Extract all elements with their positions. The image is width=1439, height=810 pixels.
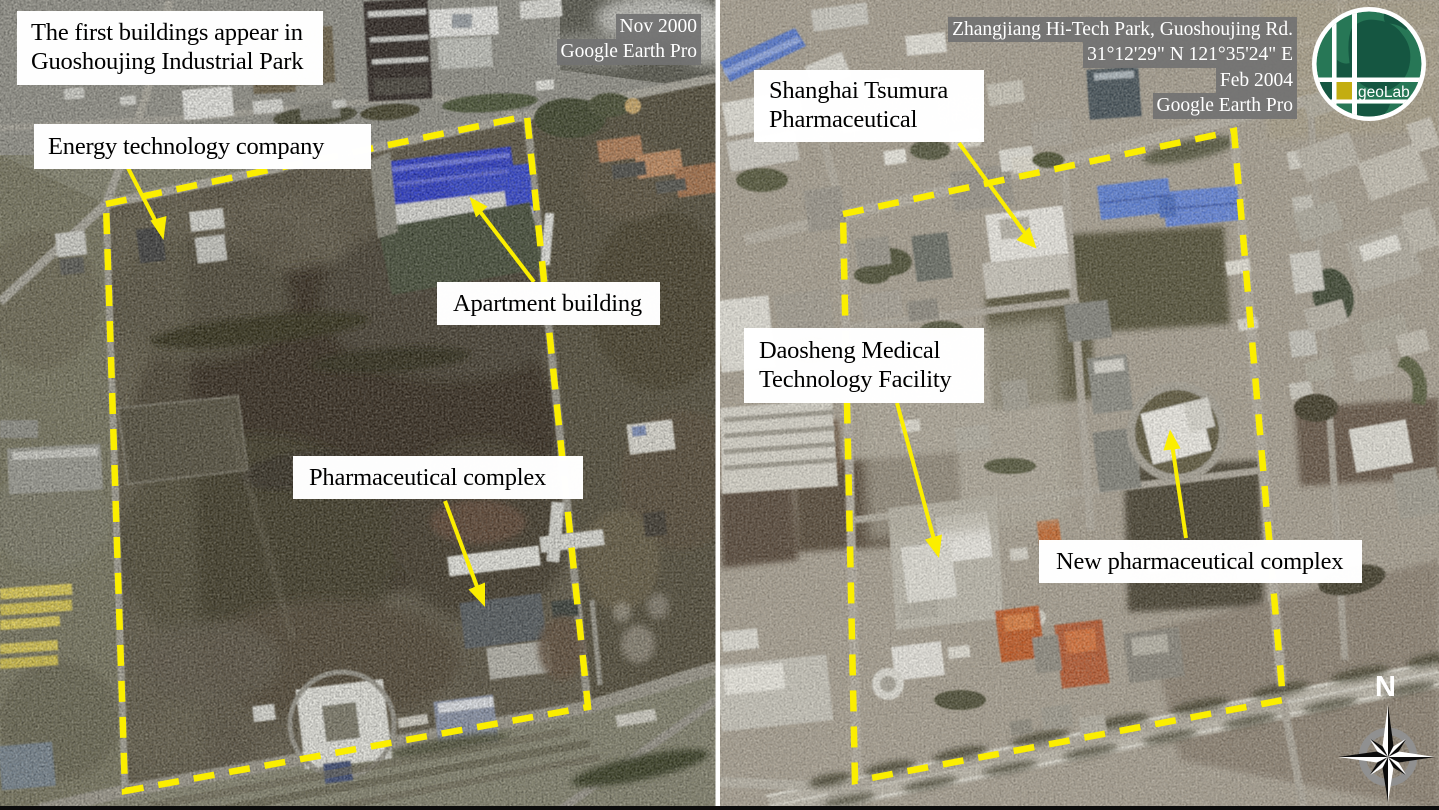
svg-text:N: N: [1375, 671, 1396, 703]
svg-text:geoLab: geoLab: [1358, 84, 1410, 101]
